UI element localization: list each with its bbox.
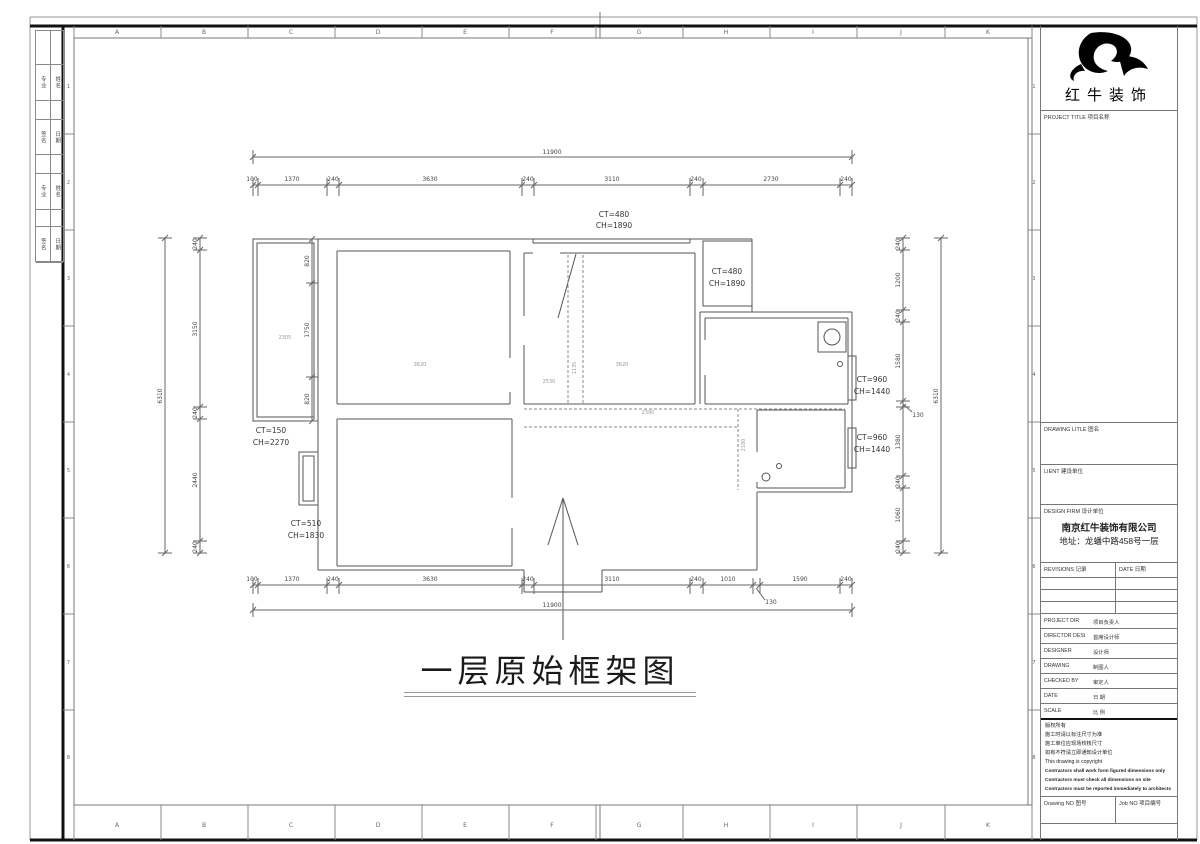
plan-title-underline: [404, 692, 696, 697]
revisions-divider: [1115, 562, 1116, 613]
svg-text:8: 8: [1032, 755, 1035, 761]
svg-text:K: K: [986, 822, 991, 829]
personnel-cn: 制图人: [1093, 663, 1109, 671]
signature-row: 专业 姓名: [36, 173, 63, 210]
copyright-line: 如有不符请立即通知设计单位: [1045, 749, 1175, 758]
svg-text:240: 240: [327, 176, 339, 183]
svg-text:2: 2: [1032, 180, 1035, 186]
dim-balcony-values: 820 1750 820: [304, 255, 311, 405]
bathroom-fixtures: [762, 322, 846, 481]
dim-left-values: 240 3150 240 2440 240: [192, 238, 199, 553]
no-row-divider: [1115, 796, 1116, 823]
svg-text:H: H: [724, 29, 729, 36]
job-no-label: Job NO 项目编号: [1119, 799, 1161, 807]
svg-text:3: 3: [67, 276, 70, 282]
svg-text:1590: 1590: [792, 576, 807, 583]
svg-text:240: 240: [840, 576, 852, 583]
svg-text:240: 240: [192, 541, 199, 553]
dim-left-total-value: 6310: [157, 388, 164, 403]
client-label: LIENT 建设单位: [1044, 467, 1083, 475]
personnel-en: DESIGNER: [1044, 648, 1072, 654]
svg-text:CT=480: CT=480: [599, 210, 630, 219]
svg-text:CH=1890: CH=1890: [596, 221, 632, 230]
svg-text:2530: 2530: [543, 379, 556, 385]
svg-text:1370: 1370: [284, 176, 299, 183]
svg-text:B: B: [202, 29, 206, 36]
svg-text:5: 5: [67, 468, 70, 474]
personnel-en: DIRECTOR DESI: [1044, 633, 1085, 639]
drawing-canvas: ABCDEFGHIJK ABCDEFGHIJK 12345678 1234567…: [0, 0, 1200, 844]
svg-text:240: 240: [327, 576, 339, 583]
dim-top-total-value: 11900: [542, 149, 561, 156]
personnel-row: CHECKED BY 审定人: [1041, 673, 1177, 689]
svg-text:240: 240: [895, 310, 902, 322]
sheet-frame-thick: [30, 26, 1197, 840]
copyright-line: Contractors must check all dimensions on…: [1045, 776, 1165, 784]
svg-text:3110: 3110: [604, 176, 619, 183]
personnel-en: SCALE: [1044, 708, 1061, 714]
copyright-line: 施工单位应现场校核尺寸: [1045, 740, 1175, 749]
svg-text:C: C: [289, 29, 293, 36]
svg-text:E: E: [463, 29, 467, 36]
svg-text:I: I: [812, 29, 814, 36]
svg-text:J: J: [899, 29, 902, 36]
svg-text:A: A: [115, 822, 120, 829]
signature-cell: 专业: [36, 65, 50, 100]
signature-cell: 姓名: [50, 65, 65, 100]
svg-text:G: G: [637, 822, 642, 829]
svg-text:240: 240: [895, 541, 902, 553]
personnel-row: DRAWING 制图人: [1041, 658, 1177, 674]
svg-text:A: A: [115, 29, 120, 36]
svg-text:CT=150: CT=150: [256, 426, 287, 435]
personnel-row: PROJECT DIR 项目负责人: [1041, 613, 1177, 629]
svg-text:6: 6: [67, 564, 70, 570]
svg-text:F: F: [550, 29, 554, 36]
svg-text:3150: 3150: [192, 321, 199, 336]
dim-right-values: 240 1200 240 1580 130 1380 240 1060 240: [895, 238, 924, 553]
svg-text:CT=960: CT=960: [857, 433, 888, 442]
divider: [1041, 504, 1177, 505]
divider: [1041, 796, 1177, 797]
svg-text:1060: 1060: [895, 507, 902, 522]
svg-text:2180: 2180: [741, 439, 747, 452]
plan-title: 一层原始框架图: [402, 646, 698, 692]
signature-row: 专业 姓名: [36, 64, 63, 101]
svg-text:2: 2: [67, 180, 70, 186]
svg-text:820: 820: [304, 255, 311, 267]
drawing-title-label: DRAWING LITLE 图名: [1044, 425, 1099, 433]
personnel-row: DATE 日 期: [1041, 688, 1177, 704]
divider: [1041, 464, 1177, 465]
svg-text:D: D: [376, 822, 381, 829]
personnel-en: DRAWING: [1044, 663, 1069, 669]
signature-cell: 日期: [50, 227, 65, 262]
divider-thick: [1041, 718, 1177, 720]
svg-text:130: 130: [765, 599, 777, 606]
svg-text:6: 6: [1032, 564, 1035, 570]
grid-letters-top: ABCDEFGHIJK: [115, 29, 991, 36]
svg-text:B: B: [202, 822, 206, 829]
personnel-cn: 首席设计师: [1093, 633, 1120, 641]
svg-text:3: 3: [1032, 276, 1035, 282]
personnel-cn: 比 例: [1093, 708, 1105, 716]
signature-cell: 日期: [50, 120, 65, 154]
divider: [1041, 823, 1177, 824]
svg-text:1010: 1010: [720, 576, 735, 583]
svg-text:E: E: [463, 822, 467, 829]
room-annotations: 2305 3620 3620 2530 1135 2390 2180: [279, 335, 747, 451]
bull-logo-icon: [1057, 30, 1161, 84]
svg-text:K: K: [986, 29, 991, 36]
svg-text:240: 240: [192, 407, 199, 419]
copyright-line: This drawing is copyright: [1045, 758, 1175, 767]
design-firm-address: 地址：龙蟠中路458号一层: [1041, 535, 1177, 547]
svg-text:CH=1890: CH=1890: [709, 279, 745, 288]
project-title-label: PROJECT TITLE 项目名称: [1044, 113, 1110, 121]
svg-text:1200: 1200: [895, 272, 902, 287]
divider: [1041, 601, 1177, 602]
svg-text:CT=510: CT=510: [291, 519, 322, 528]
dim-right-total-value: 6310: [933, 388, 940, 403]
svg-text:2390: 2390: [642, 410, 655, 416]
svg-text:7: 7: [67, 660, 70, 666]
divider: [1041, 562, 1177, 563]
svg-text:CH=1440: CH=1440: [854, 387, 890, 396]
copyright-line: Contractors must be reported immediately…: [1045, 785, 1165, 793]
svg-text:F: F: [550, 822, 554, 829]
svg-text:3630: 3630: [422, 176, 437, 183]
dim-top-values: 100 1370 240 3630 240 3110 240 2730 240: [246, 176, 852, 183]
svg-text:1750: 1750: [304, 322, 311, 337]
svg-text:4: 4: [67, 372, 70, 378]
logo-text: 红牛装饰: [1041, 84, 1177, 105]
divider: [1041, 589, 1177, 590]
svg-text:130: 130: [912, 412, 924, 419]
svg-text:100: 100: [246, 576, 258, 583]
signature-row: 签名 日期: [36, 119, 63, 155]
svg-text:820: 820: [304, 393, 311, 405]
drawing-no-label: Drawing NO 图号: [1044, 799, 1086, 807]
svg-text:4: 4: [1032, 372, 1035, 378]
svg-text:3110: 3110: [604, 576, 619, 583]
copyright-block: 版权所有 施工时请以标注尺寸为准 施工单位应现场校核尺寸 如有不符请立即通知设计…: [1045, 722, 1175, 794]
dim-bottom-segments: [250, 578, 855, 600]
plan-walls: [253, 239, 856, 592]
copyright-line: 施工时请以标注尺寸为准: [1045, 731, 1175, 740]
sheet-frame: [30, 12, 1197, 840]
personnel-cn: 项目负责人: [1093, 618, 1120, 626]
copyright-line: Contractors shall work form figured dime…: [1045, 767, 1165, 775]
title-block: 红牛装饰 PROJECT TITLE 项目名称 DRAWING LITLE 图名…: [1040, 26, 1178, 840]
copyright-line: 版权所有: [1045, 722, 1175, 731]
svg-text:240: 240: [895, 476, 902, 488]
svg-text:8: 8: [67, 755, 70, 761]
svg-text:240: 240: [192, 238, 199, 250]
dim-left-segments: [193, 235, 207, 556]
svg-text:D: D: [376, 29, 381, 36]
divider: [1041, 110, 1177, 111]
grid-letters-bottom: ABCDEFGHIJK: [115, 822, 991, 829]
signature-strip: 专业 姓名 签名 日期 专业 姓名 签名 日期: [35, 30, 64, 262]
svg-text:240: 240: [690, 576, 702, 583]
svg-text:240: 240: [522, 576, 534, 583]
svg-text:3620: 3620: [414, 362, 427, 368]
svg-text:CT=480: CT=480: [712, 267, 743, 276]
svg-text:240: 240: [522, 176, 534, 183]
svg-text:100: 100: [246, 176, 258, 183]
personnel-cn: 日 期: [1093, 693, 1105, 701]
svg-text:CT=960: CT=960: [857, 375, 888, 384]
svg-text:J: J: [899, 822, 902, 829]
dim-bottom-total-value: 11900: [542, 602, 561, 609]
personnel-row: SCALE 比 例: [1041, 703, 1177, 719]
divider: [1041, 577, 1177, 578]
signature-cell: 专业: [36, 174, 50, 209]
personnel-row: DIRECTOR DESI 首席设计师: [1041, 628, 1177, 644]
svg-text:CH=1830: CH=1830: [288, 531, 324, 540]
svg-text:240: 240: [840, 176, 852, 183]
svg-text:H: H: [724, 822, 729, 829]
personnel-en: CHECKED BY: [1044, 678, 1078, 684]
svg-text:CH=1440: CH=1440: [854, 445, 890, 454]
svg-text:2730: 2730: [763, 176, 778, 183]
svg-text:240: 240: [895, 238, 902, 250]
svg-text:G: G: [637, 29, 642, 36]
signature-cell: 签名: [36, 227, 50, 262]
design-firm-name: 南京红牛装饰有限公司: [1041, 520, 1177, 534]
svg-text:C: C: [289, 822, 293, 829]
svg-text:1380: 1380: [895, 434, 902, 449]
svg-text:I: I: [812, 822, 814, 829]
personnel-en: DATE: [1044, 693, 1058, 699]
svg-text:1: 1: [1032, 84, 1035, 90]
svg-text:2440: 2440: [192, 472, 199, 487]
svg-text:CH=2270: CH=2270: [253, 438, 289, 447]
svg-text:3630: 3630: [422, 576, 437, 583]
personnel-row: DESIGNER 设计师: [1041, 643, 1177, 659]
svg-text:240: 240: [690, 176, 702, 183]
personnel-cn: 设计师: [1093, 648, 1109, 656]
divider: [1041, 422, 1177, 423]
svg-text:1370: 1370: [284, 576, 299, 583]
svg-text:1580: 1580: [895, 353, 902, 368]
svg-text:7: 7: [1032, 660, 1035, 666]
design-firm-label: DESIGN FIRM 设计单位: [1044, 507, 1104, 515]
svg-text:5: 5: [1032, 468, 1035, 474]
personnel-en: PROJECT DIR: [1044, 618, 1079, 624]
revisions-label: REVISIONS 记录: [1044, 565, 1086, 573]
svg-text:3620: 3620: [616, 362, 629, 368]
entry-arrow: [548, 498, 578, 640]
svg-text:1135: 1135: [572, 362, 578, 375]
personnel-cn: 审定人: [1093, 678, 1109, 686]
svg-text:2305: 2305: [279, 335, 292, 341]
signature-cell: 姓名: [50, 174, 65, 209]
signature-row: 签名 日期: [36, 226, 63, 263]
svg-text:1: 1: [67, 84, 70, 90]
revisions-date-label: DATE 日期: [1119, 565, 1146, 573]
signature-cell: 签名: [36, 120, 50, 154]
